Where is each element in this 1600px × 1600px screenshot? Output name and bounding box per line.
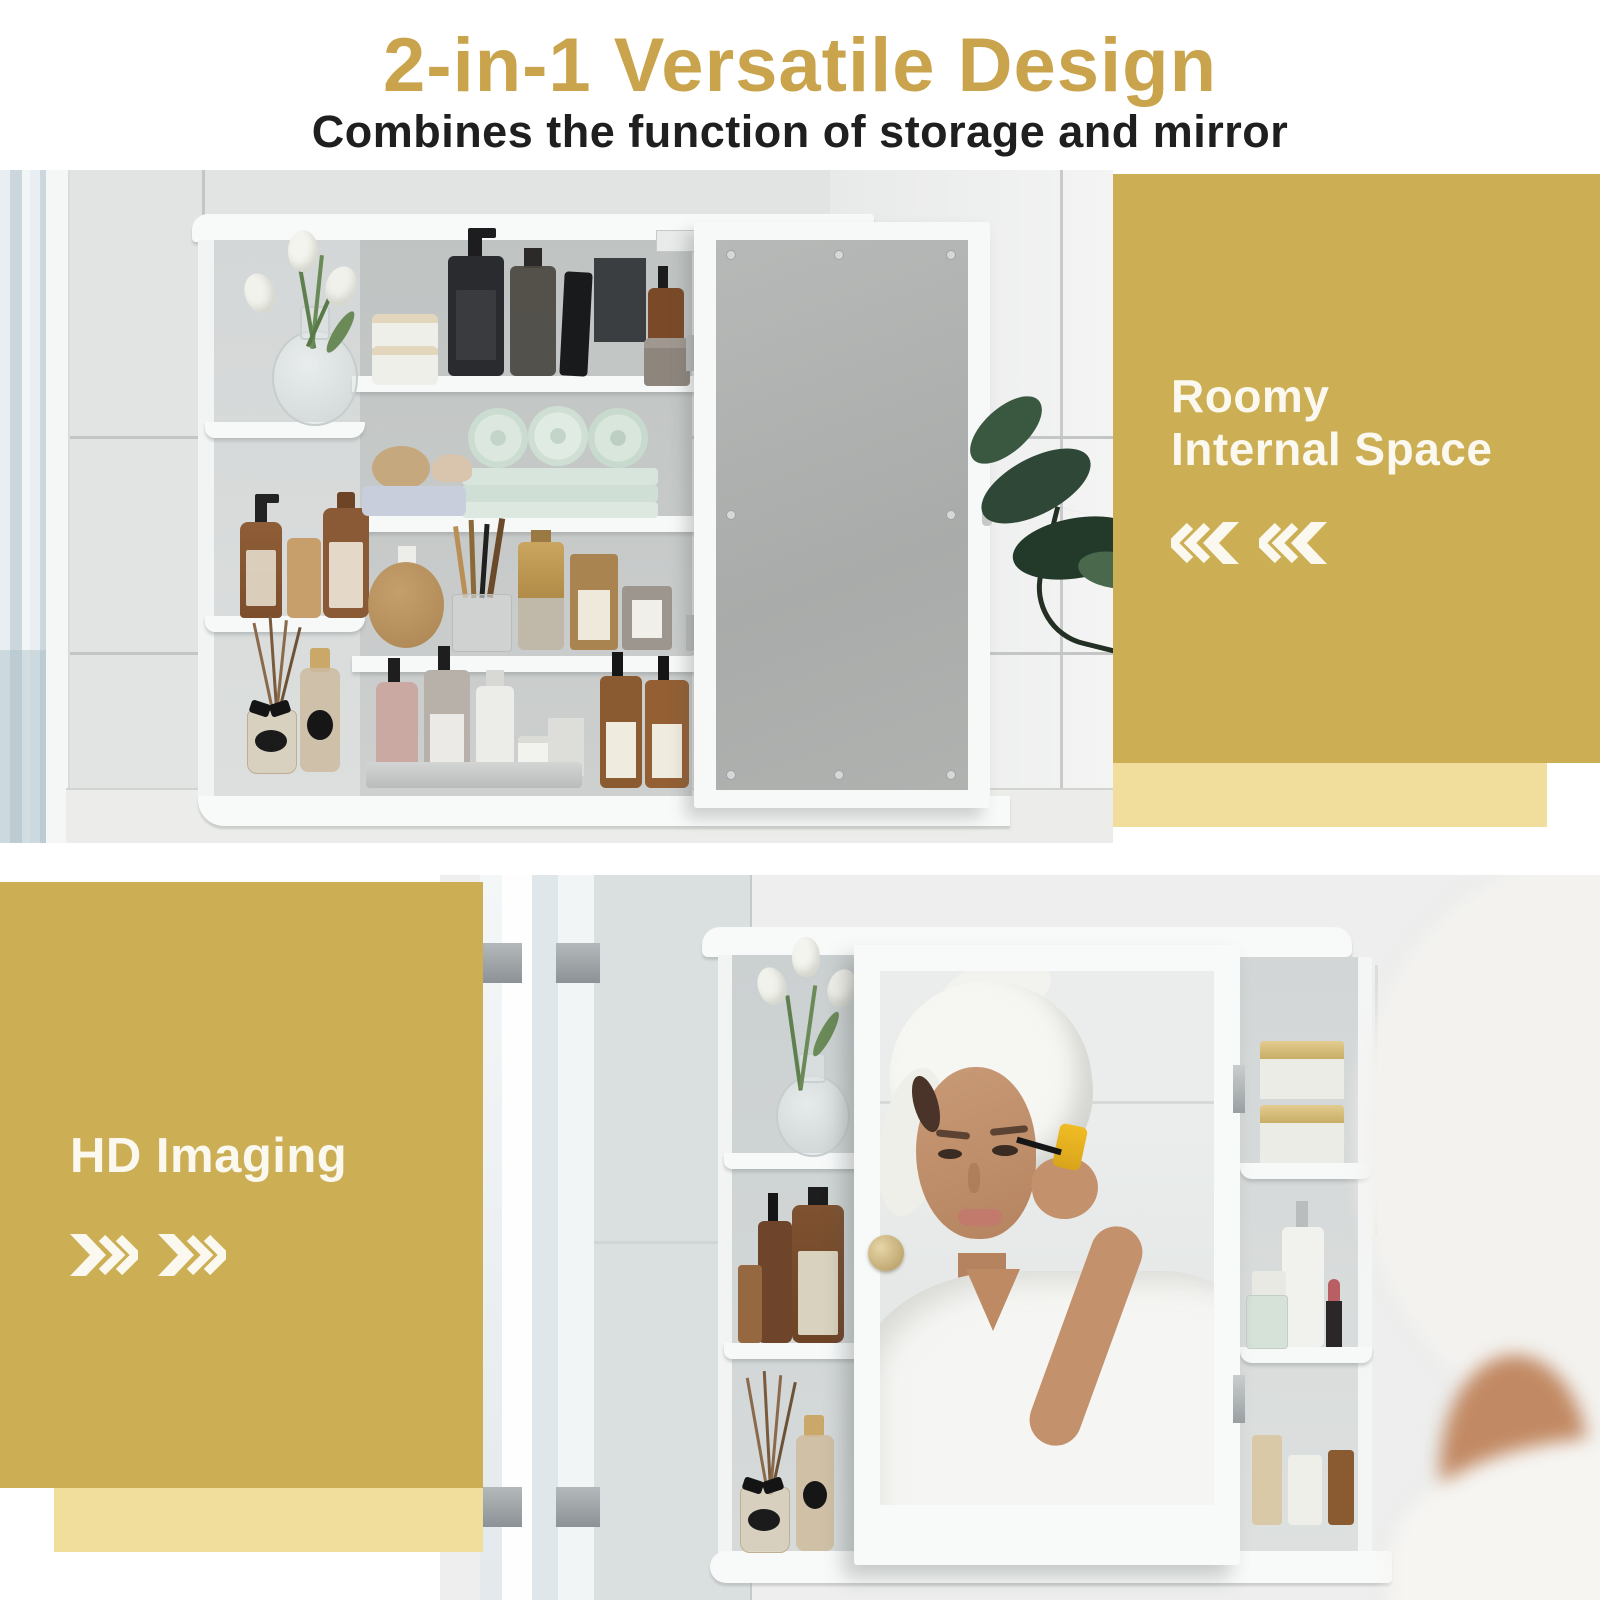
cabinet-shelf	[352, 656, 700, 672]
mirror-screw	[834, 770, 844, 780]
chevrons-right-group	[70, 1234, 226, 1276]
amber-bottle	[287, 538, 321, 618]
folded-towel-lavender	[362, 486, 466, 516]
folded-towel	[462, 468, 658, 485]
rolled-towel	[528, 406, 588, 466]
loofah-sponge	[372, 446, 430, 490]
photo-cabinet-open	[0, 170, 1113, 843]
candle-label	[632, 600, 662, 638]
foreground-blur-figure	[440, 875, 1600, 1600]
pump-stem	[388, 658, 400, 684]
bottle-label-dark	[307, 710, 333, 740]
pump-stem	[658, 656, 669, 682]
smoke-bottle	[510, 266, 556, 376]
bottle-label	[652, 724, 682, 778]
mirror-glass	[716, 240, 968, 790]
chevrons-left-icon	[1171, 522, 1239, 564]
metal-tray	[366, 762, 582, 788]
mirror-screw	[726, 770, 736, 780]
pump-nozzle	[255, 494, 279, 503]
callout-roomy-label: Roomy Internal Space	[1171, 370, 1492, 476]
black-tube	[559, 271, 592, 376]
roomy-line2: Internal Space	[1171, 423, 1492, 475]
tulip-flower	[288, 230, 318, 272]
wall-pillar	[46, 170, 70, 843]
side-shelf	[205, 422, 365, 438]
roomy-line1: Roomy	[1171, 370, 1329, 422]
bottle-label	[329, 542, 363, 608]
gold-accent-strip-top	[1113, 763, 1547, 827]
callout-roomy-internal-space: Roomy Internal Space	[1113, 174, 1600, 763]
mirror-screw	[834, 250, 844, 260]
mirror-door-open	[694, 222, 990, 808]
page-subtitle: Combines the function of storage and mir…	[0, 106, 1600, 158]
taupe-jar	[644, 338, 690, 386]
pink-pump-bottle	[376, 682, 418, 774]
pump-nozzle	[468, 228, 496, 238]
mirror-screw	[946, 770, 956, 780]
lotus-decor	[432, 454, 472, 482]
chevrons-left-group	[1171, 522, 1327, 564]
rolled-towel	[588, 408, 648, 468]
bottle-label-dark	[456, 290, 496, 360]
bottle-label	[246, 550, 276, 606]
cream-jar	[372, 346, 438, 385]
diffuser-label	[255, 730, 287, 752]
callout-hd-label: HD Imaging	[70, 1130, 347, 1183]
chevrons-left-icon	[1259, 522, 1327, 564]
gold-perfume-bottom	[518, 598, 564, 650]
gold-accent-strip-bottom	[54, 1488, 483, 1552]
gold-perfume-top	[518, 542, 564, 598]
foreground-robe-shoulder	[1390, 1437, 1600, 1600]
mirror-screw	[946, 250, 956, 260]
product-infographic: 2-in-1 Versatile Design Combines the fun…	[0, 0, 1600, 1600]
pump-stem	[658, 266, 668, 290]
bottle-label	[578, 590, 610, 640]
folded-towel	[462, 485, 658, 502]
rolled-towel	[468, 408, 528, 468]
pump-stem	[438, 646, 450, 672]
dark-box	[594, 258, 646, 342]
shower-glass-lower	[0, 650, 46, 843]
photo-mirror-reflection	[440, 875, 1600, 1600]
mirror-screw	[946, 510, 956, 520]
mirror-screw	[726, 510, 736, 520]
foreground-towel-head	[1360, 875, 1600, 1435]
plant	[960, 400, 1113, 720]
callout-hd-imaging: HD Imaging	[0, 882, 483, 1488]
cabinet-shelf	[352, 516, 700, 532]
chevrons-right-icon	[70, 1234, 138, 1276]
chevrons-right-icon	[158, 1234, 226, 1276]
mirror-screw	[726, 250, 736, 260]
page-title: 2-in-1 Versatile Design	[0, 22, 1600, 109]
brush-cup	[452, 594, 512, 652]
bottle-label	[430, 714, 464, 766]
cabinet-side-panel	[198, 240, 214, 800]
bottle-cap	[524, 248, 542, 268]
folded-towel	[462, 502, 658, 518]
bottle-label	[606, 722, 636, 778]
pump-stem	[612, 652, 623, 678]
round-perfume	[368, 562, 444, 648]
